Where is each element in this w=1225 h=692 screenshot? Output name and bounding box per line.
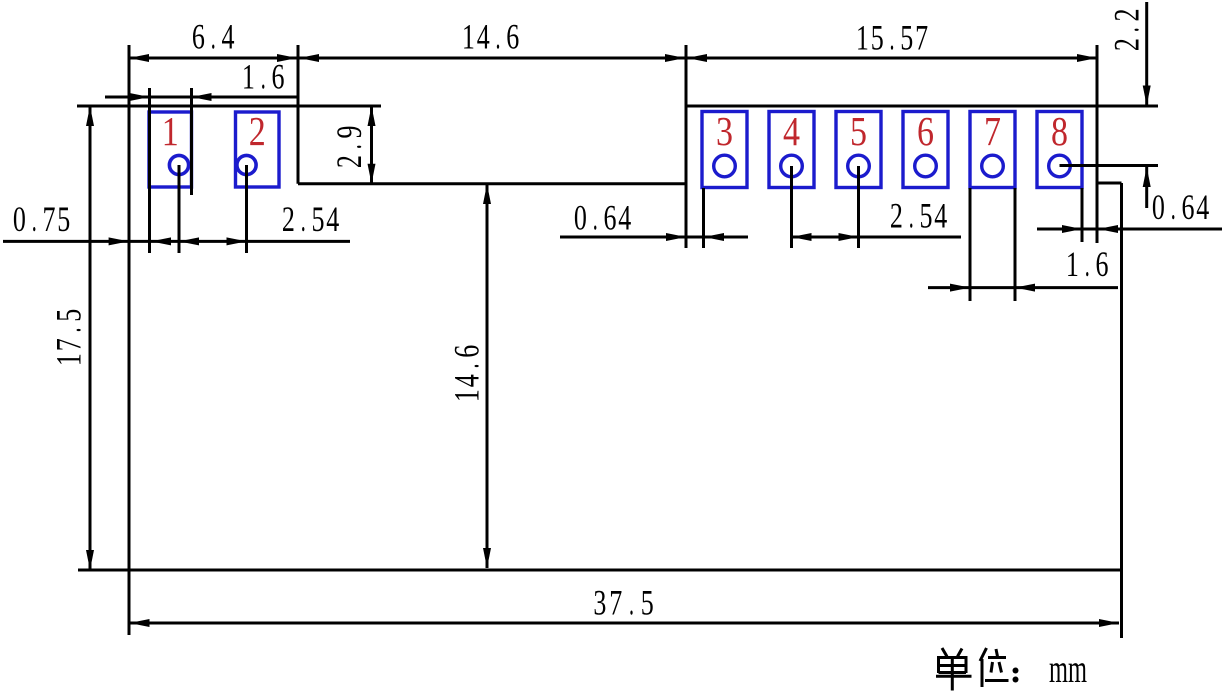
svg-text:6: 6 [1182,187,1195,227]
svg-text:5: 5 [641,583,654,623]
svg-text:2: 2 [329,155,369,168]
svg-text:4: 4 [618,198,631,238]
svg-text:3: 3 [716,108,733,154]
svg-text:5: 5 [312,199,325,239]
svg-text:4: 4 [783,108,800,154]
svg-text:7: 7 [49,338,89,351]
svg-text:.: . [1171,187,1176,227]
svg-text:.: . [49,328,89,333]
svg-text:8: 8 [1051,108,1068,154]
svg-text:4: 4 [326,199,339,239]
svg-text:1: 1 [462,17,475,57]
svg-text:7: 7 [915,18,928,58]
svg-text:6: 6 [1096,244,1109,284]
svg-text:2: 2 [1107,9,1147,22]
svg-text:.: . [629,583,634,623]
svg-text:4: 4 [447,374,487,387]
svg-text:6: 6 [192,17,205,57]
svg-text:.: . [1085,244,1090,284]
svg-text:1: 1 [1066,244,1079,284]
svg-text:5: 5 [57,199,70,239]
svg-text:.: . [890,18,895,58]
svg-text:2: 2 [1107,38,1147,51]
svg-text:7: 7 [609,583,622,623]
svg-text:4: 4 [934,196,947,236]
svg-text:6: 6 [272,57,285,97]
svg-text:.: . [593,198,598,238]
svg-text:.: . [261,57,266,97]
svg-text:6: 6 [604,198,617,238]
svg-text:0: 0 [574,198,587,238]
svg-text:1: 1 [856,18,869,58]
svg-text:4: 4 [222,17,235,57]
svg-text:5: 5 [900,18,913,58]
svg-text:.: . [447,364,487,369]
svg-text:.: . [496,17,501,57]
svg-text:0: 0 [13,199,26,239]
svg-text:mm: mm [1049,646,1087,691]
svg-text:5: 5 [850,108,867,154]
svg-text:1: 1 [242,57,255,97]
svg-text:9: 9 [329,126,369,139]
svg-text:.: . [329,144,369,149]
svg-text:6: 6 [447,345,487,358]
svg-text:3: 3 [593,583,606,623]
svg-text:4: 4 [477,17,490,57]
svg-text:1: 1 [49,353,89,366]
svg-text:5: 5 [49,309,89,322]
svg-text:.: . [211,17,216,57]
svg-text:.: . [909,196,914,236]
svg-text:7: 7 [43,199,56,239]
svg-text:.: . [32,199,37,239]
svg-text:5: 5 [920,196,933,236]
svg-text:1: 1 [162,108,179,154]
svg-text:.: . [301,199,306,239]
svg-text:2: 2 [282,199,295,239]
svg-text:6: 6 [506,17,519,57]
svg-text:1: 1 [447,389,487,402]
svg-text:6: 6 [917,108,934,154]
svg-text:4: 4 [1196,187,1209,227]
svg-text:0: 0 [1152,187,1165,227]
svg-text:2: 2 [890,196,903,236]
svg-text:5: 5 [871,18,884,58]
svg-text:2: 2 [249,108,266,154]
svg-text:.: . [1107,27,1147,32]
svg-text:7: 7 [984,108,1001,154]
